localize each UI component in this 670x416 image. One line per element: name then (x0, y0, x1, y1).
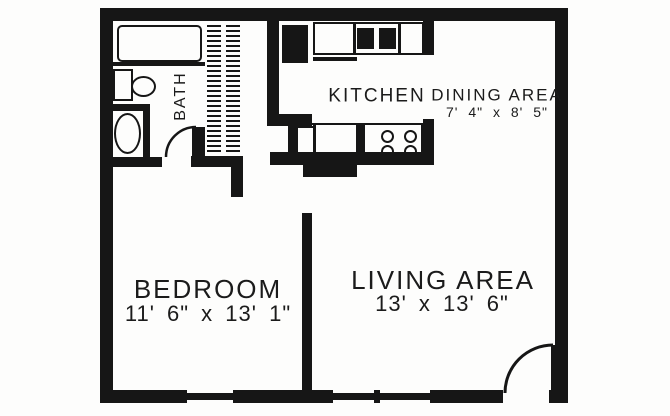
floor-plan: BATH KITCHEN DINING AREA 7' 4" x 8' 5" B… (0, 0, 670, 416)
wall-top (100, 8, 568, 21)
kitchen-bar-ledge (303, 165, 357, 177)
closet-rod-icon (207, 25, 221, 155)
wall-bottom-segment (100, 390, 187, 403)
living-dimensions: 13' x 13' 6" (375, 293, 509, 315)
living-label: LIVING AREA (351, 267, 535, 293)
kitchen-wall-right-upper (423, 21, 434, 55)
refrigerator-icon (282, 25, 308, 63)
bedroom-label: BEDROOM (134, 276, 282, 302)
kitchen-sink-basin-icon (379, 28, 396, 49)
range-burner-icon (404, 130, 417, 143)
bedroom-dimensions: 11' 6" x 13' 1" (125, 303, 291, 325)
bathtub-icon (117, 25, 202, 62)
counter-divider (353, 22, 356, 55)
kitchen-wall-left (267, 21, 279, 126)
closet-wall-stub (231, 167, 243, 197)
bedroom-living-wall (302, 213, 312, 393)
closet-rod-icon (226, 25, 240, 155)
wall-left (100, 8, 113, 403)
counter-front-edge (313, 57, 357, 61)
kitchen-wall-bottom (270, 152, 434, 165)
range-burner-icon (381, 130, 394, 143)
living-window (333, 393, 430, 400)
bath-door-arc-icon (163, 124, 199, 160)
dining-label: DINING AREA (431, 87, 563, 104)
tub-platform-edge (113, 62, 205, 66)
bath-label: BATH (173, 71, 189, 120)
toilet-icon (114, 113, 141, 154)
closet-wall-bottom (191, 156, 243, 167)
toilet-alcove-wall-right (143, 104, 150, 157)
bedroom-window (187, 393, 233, 400)
wall-bottom-segment (233, 390, 333, 403)
dining-dimensions: 7' 4" x 8' 5" (446, 105, 548, 119)
bath-wall-bottom (113, 157, 162, 167)
wall-bottom-segment (430, 390, 503, 403)
sink-bowl-icon (131, 76, 156, 97)
counter-divider (398, 22, 401, 55)
kitchen-label: KITCHEN (328, 87, 425, 106)
kitchen-sink-basin-icon (357, 28, 374, 49)
window-mullion (374, 390, 380, 403)
entry-door-arc-icon (501, 341, 557, 397)
vanity-icon (113, 69, 133, 101)
